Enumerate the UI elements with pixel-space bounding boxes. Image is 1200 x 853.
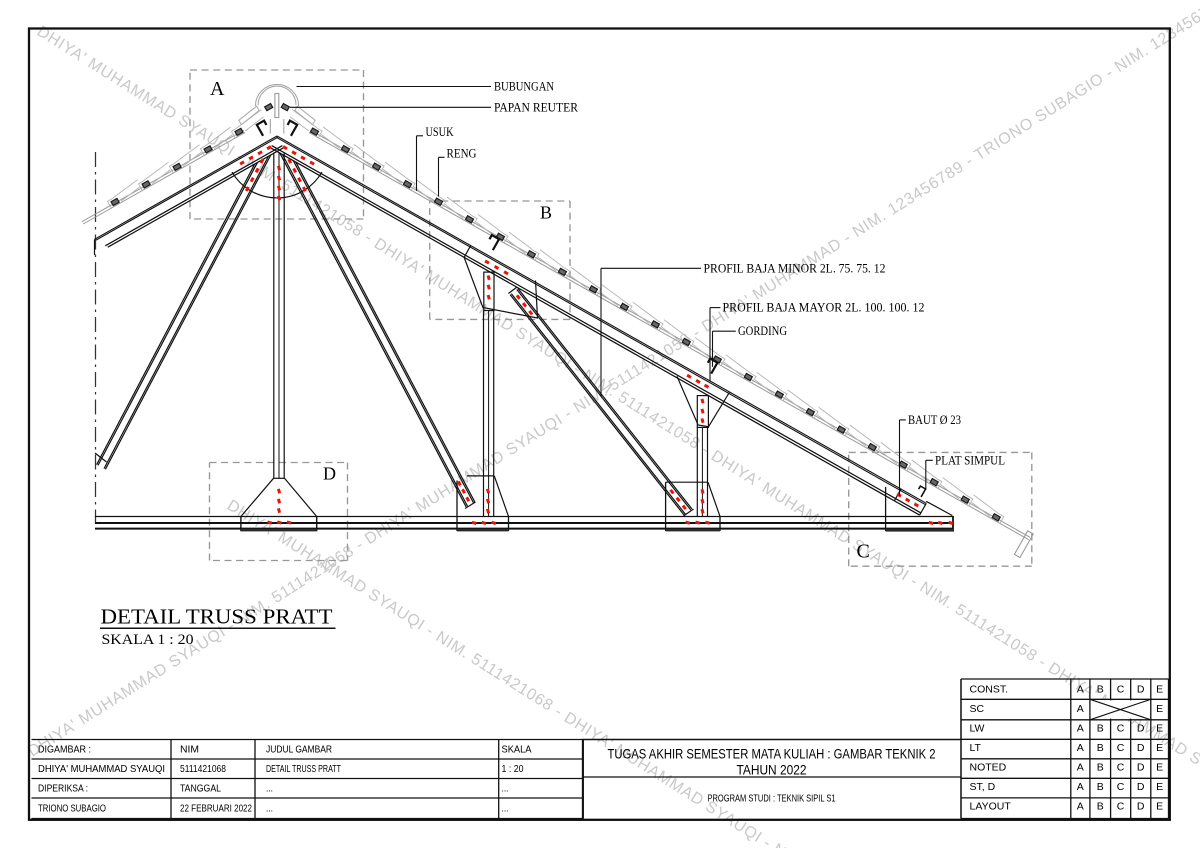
svg-text:A: A — [210, 78, 225, 100]
svg-text:PROFIL BAJA MAYOR 2L. 100. 100: PROFIL BAJA MAYOR 2L. 100. 100. 12 — [723, 301, 925, 315]
svg-text:A: A — [1077, 742, 1084, 754]
svg-text:LAYOUT: LAYOUT — [970, 801, 1012, 813]
svg-text:C: C — [1117, 742, 1125, 754]
svg-text:C: C — [1117, 762, 1125, 774]
svg-text:BAUT Ø 23: BAUT Ø 23 — [908, 413, 961, 427]
svg-text:CONST.: CONST. — [970, 684, 1009, 696]
svg-text:C: C — [1117, 781, 1125, 793]
svg-text:DIPERIKSA :: DIPERIKSA : — [38, 784, 88, 795]
svg-text:DETAIL TRUSS PRATT: DETAIL TRUSS PRATT — [101, 605, 333, 629]
svg-text:E: E — [1156, 762, 1163, 774]
svg-text:DIGAMBAR :: DIGAMBAR : — [38, 745, 91, 756]
svg-text:NOTED: NOTED — [970, 762, 1007, 774]
svg-text:E: E — [1156, 684, 1163, 696]
svg-text:PAPAN REUTER: PAPAN REUTER — [494, 100, 579, 114]
svg-text:A: A — [1077, 684, 1084, 696]
svg-text:D: D — [323, 464, 336, 484]
svg-text:E: E — [1156, 781, 1163, 793]
svg-text:NIM: NIM — [180, 745, 199, 756]
svg-text:DHIYA' MUHAMMAD SYAUQI: DHIYA' MUHAMMAD SYAUQI — [38, 764, 165, 775]
svg-text:A: A — [1077, 781, 1084, 793]
svg-text:C: C — [857, 541, 870, 563]
svg-text:...: ... — [266, 803, 273, 814]
svg-text:DETAIL TRUSS PRATT: DETAIL TRUSS PRATT — [266, 764, 341, 775]
svg-text:C: C — [1117, 801, 1125, 813]
svg-text:B: B — [1097, 762, 1104, 774]
svg-text:TUGAS AKHIR SEMESTER MATA KULI: TUGAS AKHIR SEMESTER MATA KULIAH : GAMBA… — [608, 747, 936, 762]
svg-text:PLAT SIMPUL: PLAT SIMPUL — [935, 453, 1005, 467]
svg-text:...: ... — [502, 803, 509, 814]
svg-text:LT: LT — [970, 742, 982, 754]
svg-text:B: B — [1097, 723, 1104, 735]
svg-text:E: E — [1156, 723, 1163, 735]
svg-text:ST, D: ST, D — [970, 781, 996, 793]
svg-text:SC: SC — [970, 703, 985, 715]
svg-text:E: E — [1156, 703, 1163, 715]
svg-text:GORDING: GORDING — [738, 324, 787, 338]
svg-text:...: ... — [502, 784, 509, 795]
svg-text:22 FEBRUARI 2022: 22 FEBRUARI 2022 — [180, 803, 252, 814]
svg-text:USUK: USUK — [426, 125, 454, 139]
svg-text:SKALA: SKALA — [502, 745, 532, 756]
svg-text:A: A — [1077, 703, 1084, 715]
svg-text:B: B — [1097, 684, 1104, 696]
svg-text:A: A — [1077, 801, 1084, 813]
svg-text:RENG: RENG — [447, 146, 477, 160]
svg-text:E: E — [1156, 742, 1163, 754]
svg-text:C: C — [1117, 684, 1125, 696]
svg-text:D: D — [1137, 742, 1145, 754]
svg-text:TAHUN 2022: TAHUN 2022 — [737, 763, 807, 778]
svg-text:D: D — [1137, 684, 1145, 696]
svg-text:B: B — [1097, 801, 1104, 813]
svg-text:D: D — [1137, 781, 1145, 793]
svg-text:PROGRAM STUDI : TEKNIK SIPIL S: PROGRAM STUDI : TEKNIK SIPIL S1 — [708, 794, 836, 805]
svg-text:A: A — [1077, 762, 1084, 774]
svg-text:BUBUNGAN: BUBUNGAN — [494, 80, 554, 94]
svg-text:LW: LW — [970, 723, 985, 735]
svg-text:D: D — [1137, 723, 1145, 735]
svg-text:5111421068: 5111421068 — [180, 764, 226, 775]
svg-text:JUDUL GAMBAR: JUDUL GAMBAR — [266, 745, 332, 756]
svg-text:TRIONO SUBAGIO: TRIONO SUBAGIO — [38, 803, 106, 814]
svg-text:...: ... — [266, 784, 273, 795]
svg-text:B: B — [540, 203, 552, 223]
svg-text:A: A — [1077, 723, 1084, 735]
svg-text:1 : 20: 1 : 20 — [502, 764, 524, 775]
svg-text:SKALA 1 : 20: SKALA 1 : 20 — [102, 632, 194, 648]
svg-text:C: C — [1117, 723, 1125, 735]
svg-text:D: D — [1137, 762, 1145, 774]
svg-text:B: B — [1097, 742, 1104, 754]
svg-text:TANGGAL: TANGGAL — [180, 784, 221, 795]
svg-text:PROFIL BAJA MINOR 2L. 75. 75.: PROFIL BAJA MINOR 2L. 75. 75. 12 — [704, 261, 886, 275]
svg-text:B: B — [1097, 781, 1104, 793]
svg-text:D: D — [1137, 801, 1145, 813]
svg-text:E: E — [1156, 801, 1163, 813]
